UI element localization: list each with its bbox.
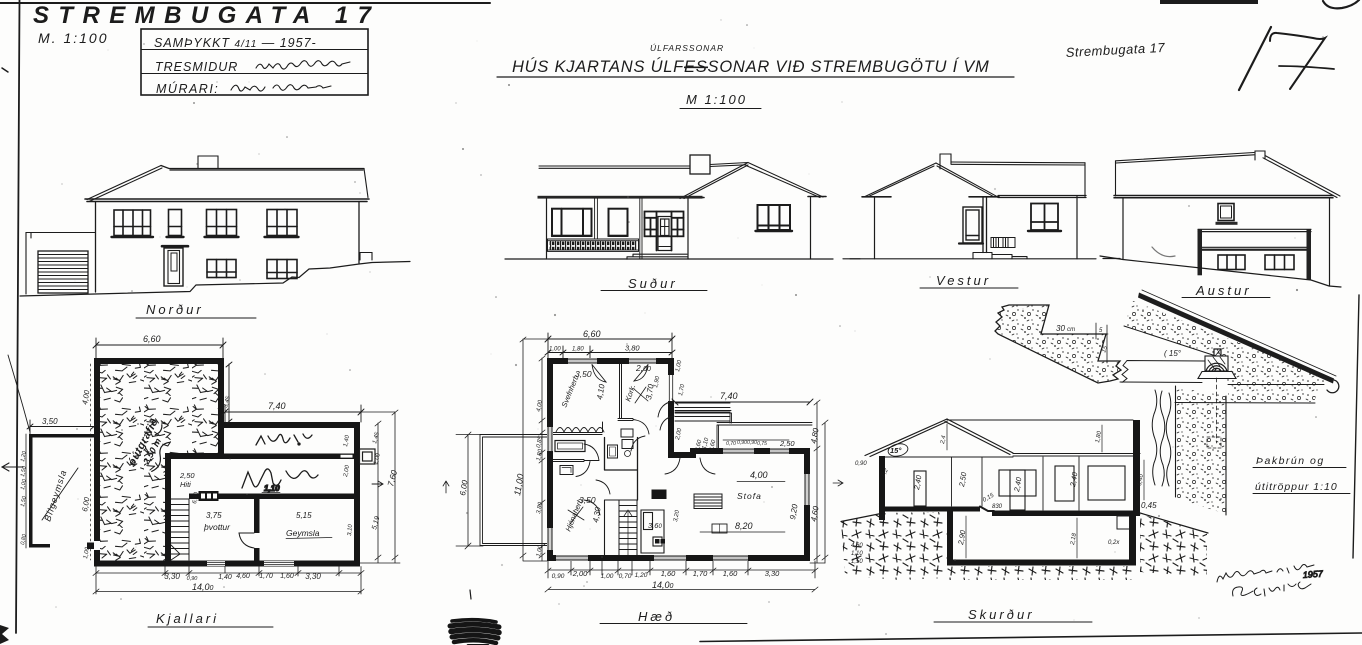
svg-text:0,90: 0,90 xyxy=(737,440,747,446)
svg-text:1957: 1957 xyxy=(1302,569,1324,580)
svg-text:3,50: 3,50 xyxy=(579,495,596,505)
svg-text:Skurður: Skurður xyxy=(968,607,1035,622)
svg-text:Vestur: Vestur xyxy=(936,273,991,288)
svg-text:Hæð: Hæð xyxy=(638,609,675,624)
svg-text:0,90: 0,90 xyxy=(855,461,867,467)
svg-text:1,00: 1,00 xyxy=(549,347,561,353)
svg-text:2,50: 2,50 xyxy=(179,471,195,480)
svg-text:1,40: 1,40 xyxy=(218,574,232,581)
svg-text:STREMBUGATA 17: STREMBUGATA 17 xyxy=(33,2,378,29)
svg-text:0,75: 0,75 xyxy=(757,441,767,447)
svg-text:M. 1:100: M. 1:100 xyxy=(38,30,108,46)
svg-text:2,00: 2,00 xyxy=(572,569,588,578)
svg-text:6,60: 6,60 xyxy=(583,329,601,339)
svg-text:ÚLFARSSONAR: ÚLFARSSONAR xyxy=(650,43,724,53)
svg-text:SAMÞYKKT 4/11 — 1957-: SAMÞYKKT 4/11 — 1957- xyxy=(154,36,317,50)
svg-text:1,20: 1,20 xyxy=(635,572,648,579)
svg-text:15°: 15° xyxy=(890,446,902,455)
svg-text:MÚRARI:: MÚRARI: xyxy=(156,81,219,96)
svg-text:0,45: 0,45 xyxy=(1141,501,1157,510)
svg-text:1,00: 1,00 xyxy=(601,573,614,580)
svg-text:( 15°: ( 15° xyxy=(1164,349,1182,358)
svg-text:Austur: Austur xyxy=(1195,283,1252,298)
svg-text:0,70: 0,70 xyxy=(726,441,736,447)
svg-text:3,10: 3,10 xyxy=(347,523,354,536)
svg-text:3,80: 3,80 xyxy=(625,344,640,353)
svg-text:Þakbrún og: Þakbrún og xyxy=(1256,455,1325,467)
svg-text:3,50: 3,50 xyxy=(575,369,592,379)
svg-text:1,80: 1,80 xyxy=(572,347,584,353)
svg-text:Norður: Norður xyxy=(146,302,204,317)
svg-text:Hiti: Hiti xyxy=(180,480,191,489)
svg-text:Geymsla: Geymsla xyxy=(286,528,320,538)
svg-text:7,40: 7,40 xyxy=(720,391,738,401)
svg-text:TRESMIDUR: TRESMIDUR xyxy=(155,60,238,74)
svg-text:Kjallari: Kjallari xyxy=(156,611,219,626)
svg-text:M 1:100: M 1:100 xyxy=(686,92,747,107)
svg-text:3,30: 3,30 xyxy=(164,572,180,581)
svg-text:1,60: 1,60 xyxy=(661,569,676,578)
svg-text:8,20: 8,20 xyxy=(735,521,753,531)
svg-text:0,90: 0,90 xyxy=(747,440,757,446)
svg-text:0,2x: 0,2x xyxy=(1108,540,1120,546)
svg-text:3,75: 3,75 xyxy=(206,511,222,520)
svg-text:1,60: 1,60 xyxy=(280,573,294,580)
svg-text:0,70: 0,70 xyxy=(619,573,632,580)
svg-text:3,30: 3,30 xyxy=(305,572,321,581)
svg-text:830: 830 xyxy=(992,504,1003,510)
svg-text:HÚS KJARTANS ÚLFESSONAR VIÐ ST: HÚS KJARTANS ÚLFESSONAR VIÐ STREMBUGÖTU … xyxy=(512,57,990,76)
svg-text:3,30: 3,30 xyxy=(765,569,780,578)
svg-text:Stofa: Stofa xyxy=(737,491,762,501)
svg-text:þvottur: þvottur xyxy=(203,522,231,532)
svg-text:Suður: Suður xyxy=(628,276,678,291)
svg-text:6,60: 6,60 xyxy=(143,334,161,344)
svg-text:0,90: 0,90 xyxy=(552,573,565,580)
svg-text:5,15: 5,15 xyxy=(296,511,312,520)
svg-text:7,40: 7,40 xyxy=(268,401,286,411)
svg-text:útitröppur 1:10: útitröppur 1:10 xyxy=(1255,481,1338,493)
svg-text:1,60: 1,60 xyxy=(723,569,738,578)
svg-text:3,50: 3,50 xyxy=(42,417,58,426)
svg-text:1,70: 1,70 xyxy=(693,569,708,578)
svg-text:4,60: 4,60 xyxy=(236,573,250,580)
svg-text:1,70: 1,70 xyxy=(259,573,273,580)
svg-text:4,00: 4,00 xyxy=(750,470,768,480)
svg-text:1,10: 1,10 xyxy=(264,484,280,493)
